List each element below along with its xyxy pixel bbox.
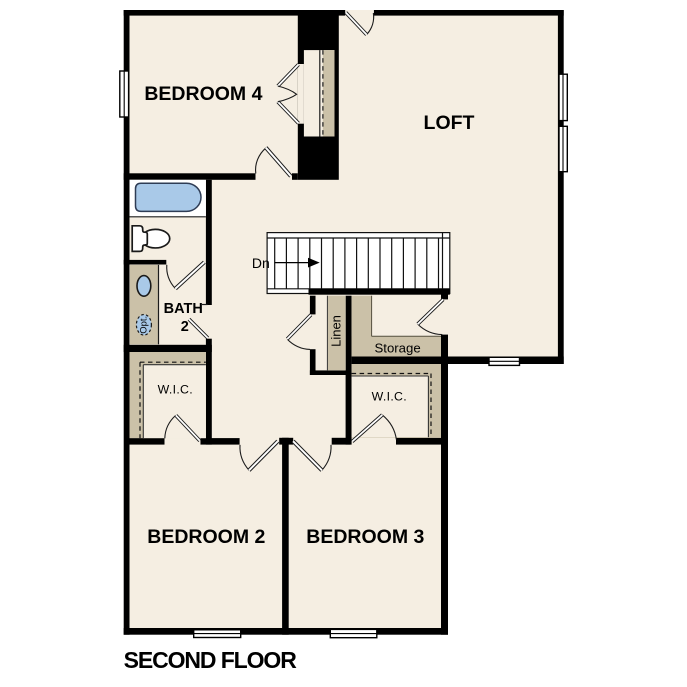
- svg-text:BATH: BATH: [164, 301, 203, 317]
- svg-text:2: 2: [181, 319, 189, 335]
- svg-text:Linen: Linen: [329, 315, 344, 347]
- svg-text:BEDROOM 2: BEDROOM 2: [147, 526, 265, 548]
- svg-text:BEDROOM 4: BEDROOM 4: [144, 83, 262, 105]
- svg-text:W.I.C.: W.I.C.: [372, 389, 407, 403]
- svg-text:BEDROOM 3: BEDROOM 3: [306, 526, 424, 548]
- svg-text:Dn: Dn: [252, 255, 270, 271]
- svg-text:Opt.: Opt.: [139, 316, 150, 334]
- svg-text:W.I.C.: W.I.C.: [158, 382, 193, 396]
- svg-text:LOFT: LOFT: [424, 112, 475, 134]
- svg-text:Storage: Storage: [374, 341, 420, 356]
- svg-text:SECOND FLOOR: SECOND FLOOR: [124, 647, 298, 673]
